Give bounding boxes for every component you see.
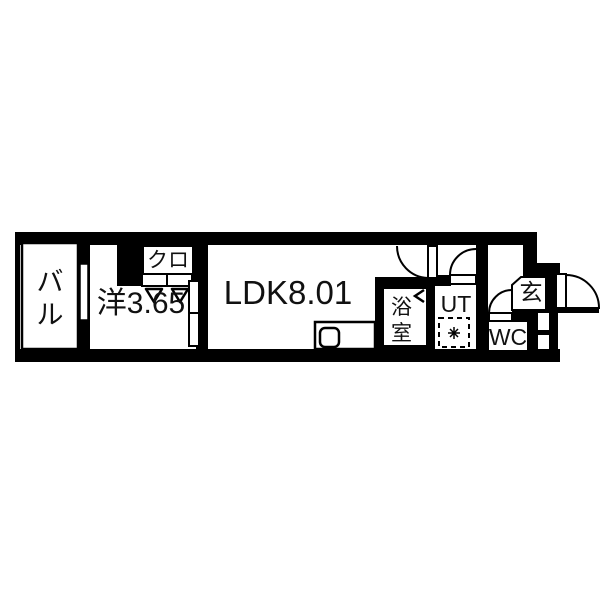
closet-door-panel-left [142, 274, 167, 286]
floorplan-canvas: バル 洋3.65 クロ LDK8.01 浴室 UT WC 玄 [0, 0, 600, 600]
western-room-label: 洋3.65 [86, 289, 196, 319]
utility-door-arc [450, 249, 476, 275]
meter-box-lower [538, 335, 549, 349]
hall-door-leaf [428, 246, 437, 278]
bathroom-label: 浴室 [390, 295, 413, 346]
wall-corridor [476, 245, 488, 349]
hall-door-arc [397, 246, 428, 278]
wall-entrance-step [523, 232, 537, 266]
toilet-door-arc [489, 290, 512, 313]
toilet-door-leaf [489, 313, 512, 321]
entrance-label: 玄 [519, 281, 543, 304]
ldk-label: LDK8.01 [207, 276, 369, 309]
wall-left [15, 232, 20, 362]
kitchen-sink-icon [320, 328, 339, 347]
balcony-label: バル [35, 266, 65, 332]
meter-box-upper [538, 313, 549, 330]
utility-door-leaf [450, 275, 476, 284]
entrance-door-arc [566, 275, 599, 308]
wall-bottom [15, 349, 560, 362]
closet-label: クロ [143, 250, 193, 271]
entrance-door-leaf [556, 274, 566, 308]
wall-top [15, 232, 537, 245]
toilet-label: WC [488, 326, 528, 349]
utility-label: UT [436, 293, 476, 316]
